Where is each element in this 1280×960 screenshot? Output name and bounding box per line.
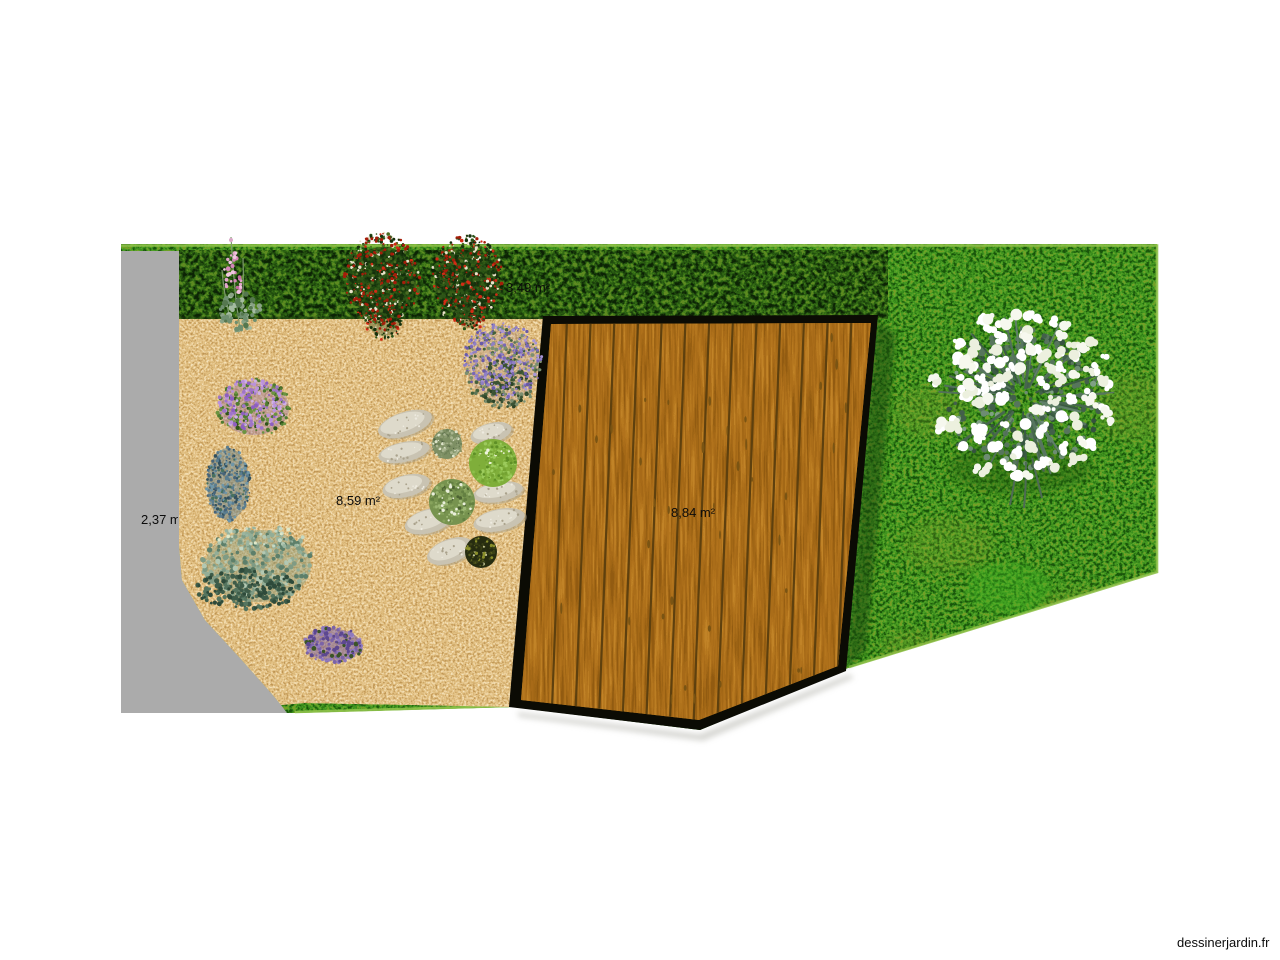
svg-text:8,84 m²: 8,84 m²	[671, 505, 716, 520]
svg-text:3,49 m²: 3,49 m²	[506, 280, 551, 295]
svg-text:dessinerjardin.fr: dessinerjardin.fr	[1177, 935, 1270, 950]
svg-text:2,37 m: 2,37 m	[141, 512, 181, 527]
svg-text:8,59 m²: 8,59 m²	[336, 493, 381, 508]
